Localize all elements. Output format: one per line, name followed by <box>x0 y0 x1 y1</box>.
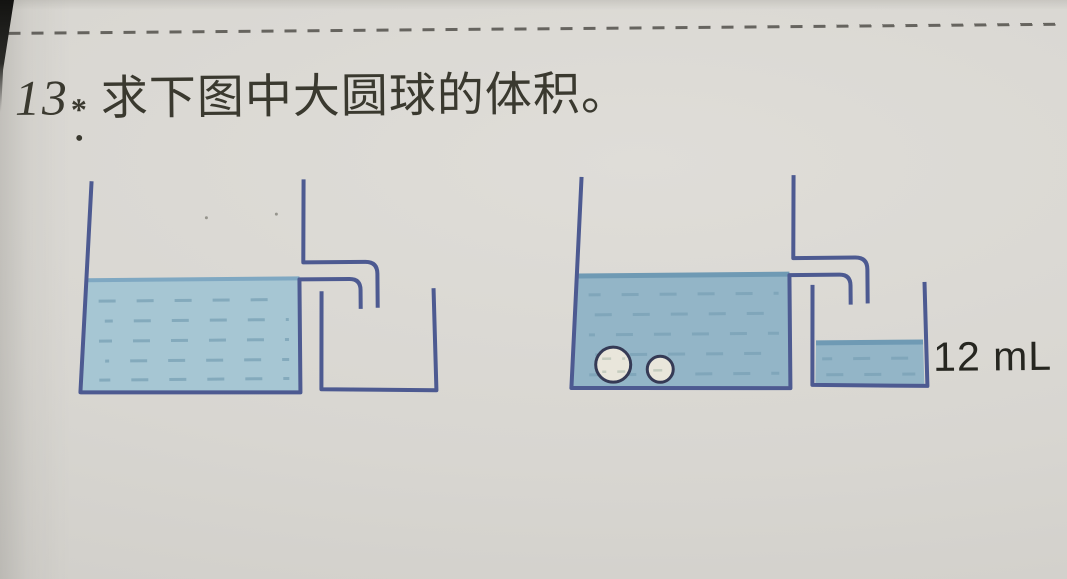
vessel-water-body <box>81 277 300 392</box>
vessel-water-surface <box>86 278 299 280</box>
photographed-textbook-page: { "problem": { "number": "13", "star": "… <box>0 0 1067 579</box>
overflow-vessel-spout-outer <box>303 179 378 309</box>
large-sphere <box>596 347 631 382</box>
paper-speck <box>205 216 208 219</box>
overflow-vessel-spout-outer <box>793 174 868 304</box>
vessel-water-surface <box>577 274 789 276</box>
page-content: 13*.求下图中大圆球的体积。 <box>0 0 1067 579</box>
diagram-after <box>570 174 928 390</box>
figure-overflow-experiment <box>0 0 1067 579</box>
catch-beaker-water-surface <box>816 342 923 343</box>
catch-beaker-water <box>815 341 924 385</box>
diagram-before <box>79 178 437 394</box>
paper-speck <box>275 213 278 216</box>
overflow-volume-label: 12 mL <box>933 333 1052 381</box>
